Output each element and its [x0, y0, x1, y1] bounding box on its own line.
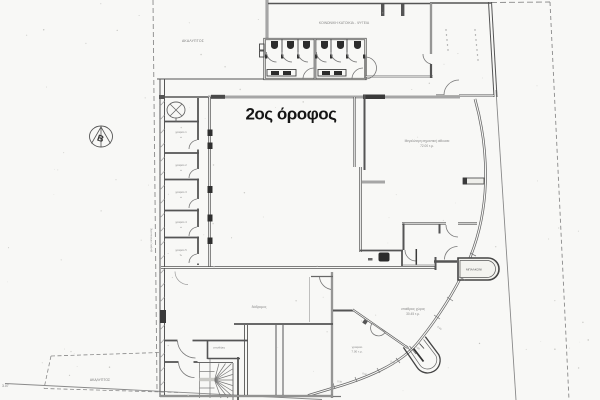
svg-text:2ος όροφος: 2ος όροφος — [245, 105, 337, 124]
svg-text:+: + — [180, 168, 182, 172]
svg-text:χωρος εκτονωσης: χωρος εκτονωσης — [149, 227, 153, 252]
svg-text:+: + — [180, 135, 182, 139]
svg-text:30.45 τ.μ.: 30.45 τ.μ. — [406, 312, 420, 316]
svg-text:+: + — [180, 225, 182, 229]
svg-text:ΜΠΑΛΚΟΝΙ: ΜΠΑΛΚΟΝΙ — [466, 268, 482, 272]
svg-text:γραφείο 1: γραφείο 1 — [175, 130, 187, 134]
svg-text:7.00 τ.μ.: 7.00 τ.μ. — [351, 350, 362, 354]
svg-text:γραφείο 2: γραφείο 2 — [175, 163, 187, 167]
svg-text:72.00 τ.μ.: 72.00 τ.μ. — [420, 144, 434, 148]
svg-text:υπαίθριος χώρος: υπαίθριος χώρος — [401, 307, 426, 311]
svg-text:+: + — [180, 195, 182, 199]
svg-text:διάδρομος: διάδρομος — [252, 305, 267, 309]
svg-text:αποθήκη: αποθήκη — [213, 346, 225, 350]
svg-text:γραφείο 5: γραφείο 5 — [175, 248, 187, 252]
svg-text:ΑΚΑΛΥΠΤΟΣ: ΑΚΑΛΥΠΤΟΣ — [182, 39, 204, 43]
svg-text:γραφείο 4: γραφείο 4 — [175, 220, 187, 224]
svg-text:ΚΟΙΝΩΝΙΚΗ ΚΑΤΟΙΚΙΑ - ΨΥΓΕΙΑ: ΚΟΙΝΩΝΙΚΗ ΚΑΤΟΙΚΙΑ - ΨΥΓΕΙΑ — [319, 21, 370, 25]
svg-text:γραφείο: γραφείο — [352, 345, 363, 349]
svg-text:γραφείο 3: γραφείο 3 — [175, 190, 187, 194]
svg-text:ΑΚΑΛΥΠΤΟΣ: ΑΚΑΛΥΠΤΟΣ — [90, 378, 110, 382]
svg-text:3.07: 3.07 — [2, 384, 9, 388]
svg-text:Μεγαλύτερη σημαντική αίθουσα: Μεγαλύτερη σημαντική αίθουσα — [405, 139, 450, 143]
